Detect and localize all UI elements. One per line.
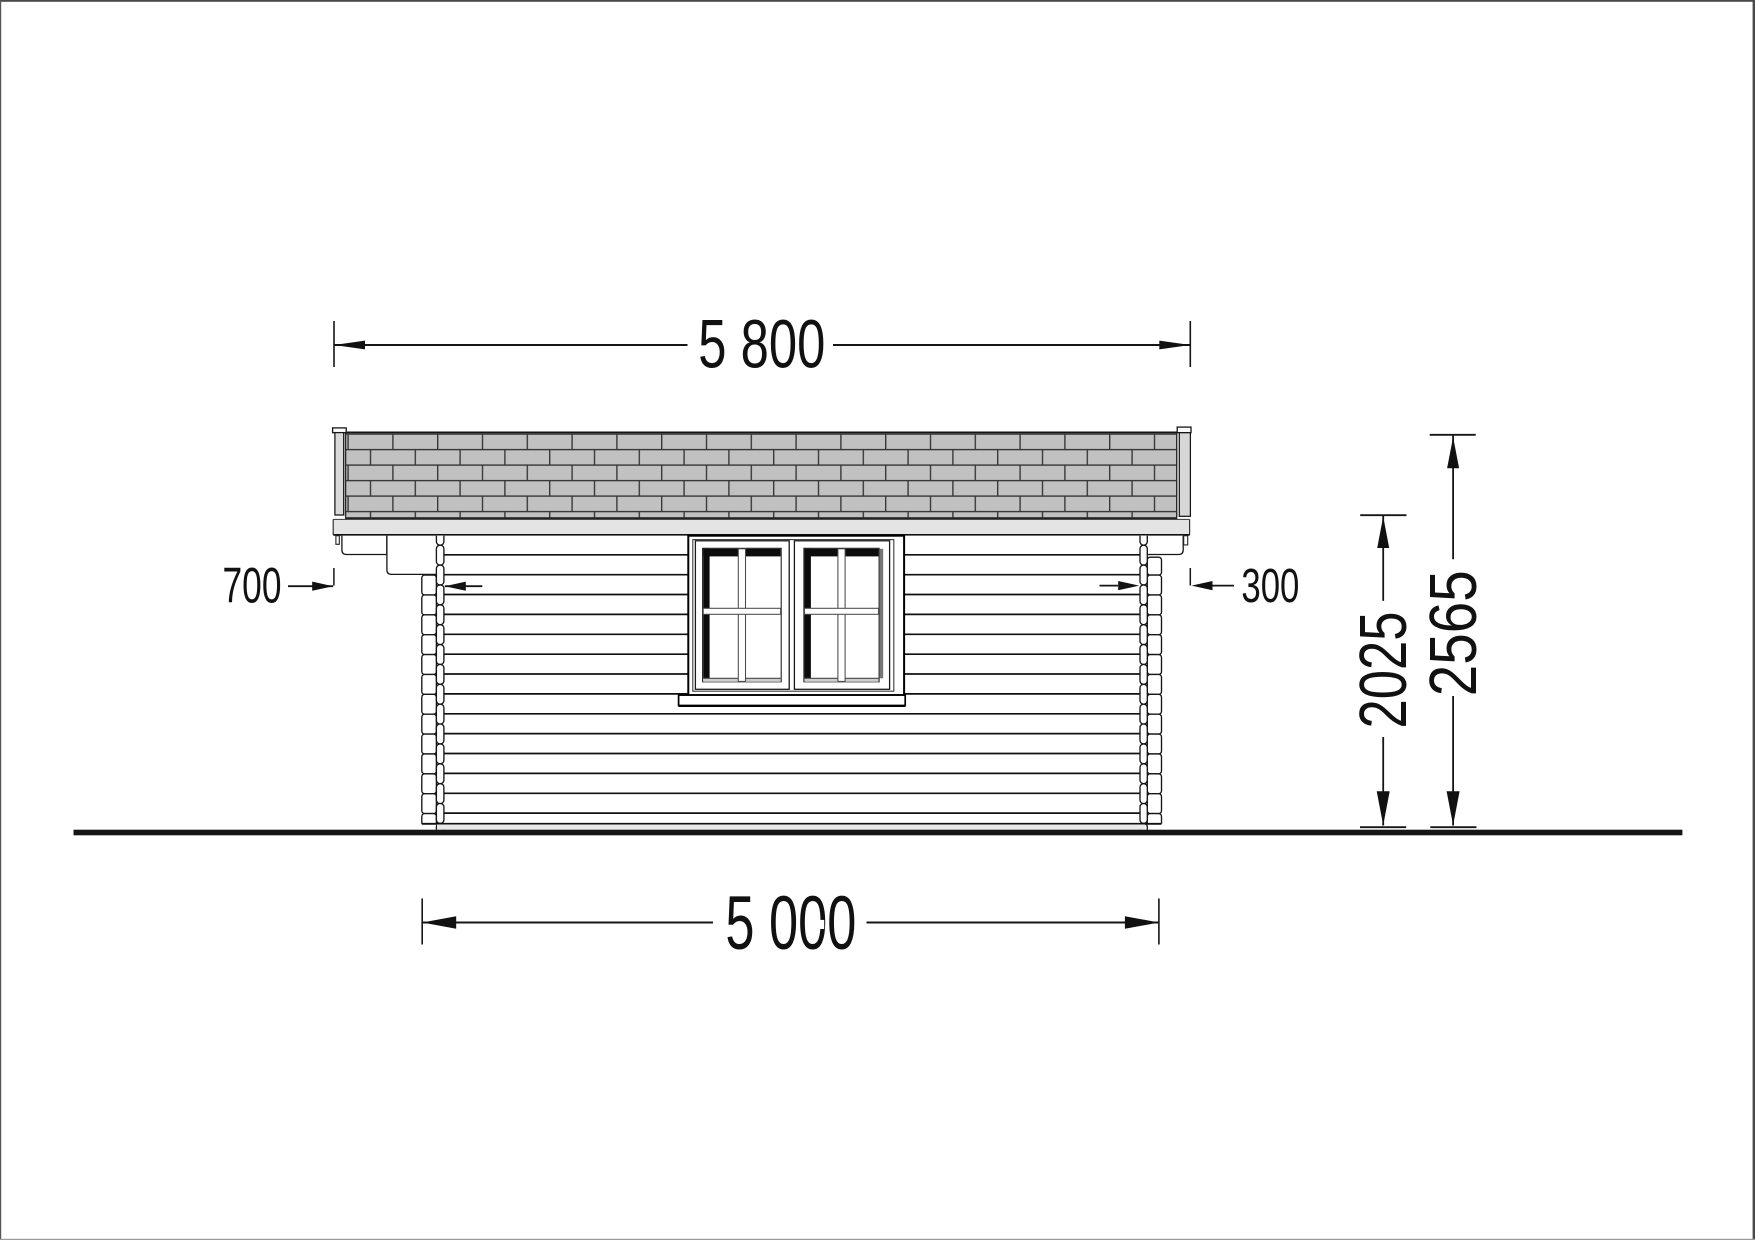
svg-text:5 000: 5 000 xyxy=(725,881,856,966)
svg-text:700: 700 xyxy=(223,558,282,614)
svg-text:300: 300 xyxy=(1241,560,1299,613)
svg-text:2025: 2025 xyxy=(1346,612,1421,729)
svg-text:2565: 2565 xyxy=(1416,570,1491,696)
svg-text:5 800: 5 800 xyxy=(698,306,825,383)
